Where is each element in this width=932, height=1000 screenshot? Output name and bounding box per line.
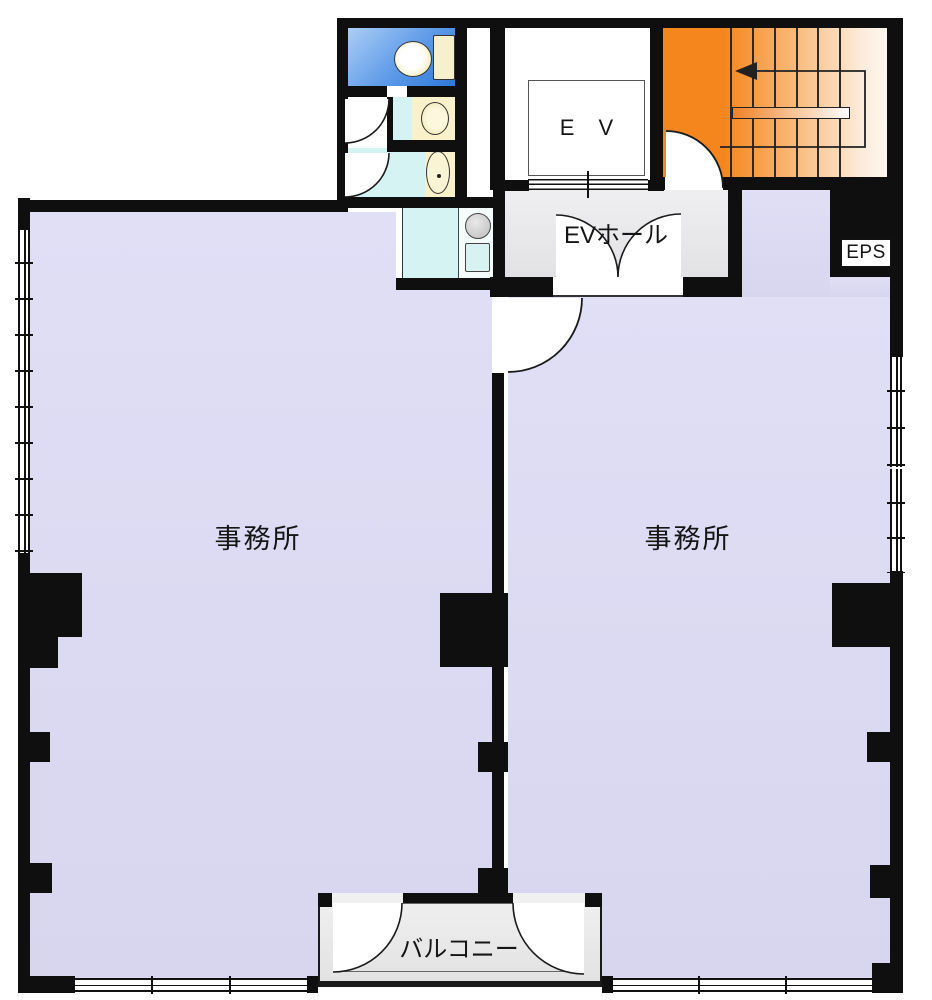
pillar — [18, 637, 58, 668]
office-right-floor-under-eps — [830, 277, 892, 297]
wall — [403, 893, 513, 903]
wall — [492, 372, 504, 593]
kitchenette-floor — [403, 207, 458, 278]
window — [18, 228, 30, 553]
wash-basin-drain — [437, 174, 441, 178]
pillar — [478, 742, 508, 772]
pillar — [18, 573, 82, 637]
office-right-floor-upper — [742, 188, 830, 297]
room-label-balcony: バルコニー — [359, 929, 559, 964]
wall — [602, 976, 613, 993]
toilet-tank-icon — [433, 35, 455, 80]
window — [75, 978, 307, 992]
wall — [492, 772, 504, 868]
wall — [20, 200, 348, 212]
stair-tread — [817, 28, 819, 177]
pillar — [867, 732, 897, 762]
stair-tread — [839, 28, 841, 177]
pillar — [440, 593, 508, 667]
floor-plan: E V — [0, 0, 932, 1000]
wall — [387, 140, 457, 152]
window — [890, 355, 902, 467]
door-opening-ev-hall — [553, 277, 683, 297]
kitchen-counter-square — [465, 243, 490, 272]
pillar — [478, 868, 508, 895]
wall — [887, 18, 903, 190]
wall — [492, 667, 504, 742]
room-label-ev-hall: EVホール — [516, 215, 716, 250]
pillar — [832, 583, 897, 647]
wall — [728, 185, 742, 277]
wall — [505, 180, 529, 191]
toilet-icon — [421, 102, 449, 135]
pillar — [20, 732, 50, 762]
eps-label: EPS — [846, 242, 886, 264]
eps-label-box: EPS — [840, 238, 892, 268]
wall — [307, 976, 318, 993]
wall — [455, 28, 467, 198]
wall — [348, 86, 387, 97]
wall — [337, 18, 903, 28]
wc-room-2-door-area — [342, 97, 387, 152]
wall — [337, 18, 348, 208]
door-opening-office-right — [492, 297, 508, 373]
pillar — [20, 863, 52, 893]
wall — [396, 278, 506, 290]
room-label-office-right: 事務所 — [588, 517, 788, 556]
wall — [585, 893, 602, 907]
wall-gap — [387, 86, 407, 97]
wall — [18, 976, 75, 993]
wall — [407, 86, 457, 97]
door-opening-stairs — [665, 177, 723, 190]
wc-room-2-floor — [393, 97, 412, 140]
wash-basin-icon — [426, 151, 450, 194]
stair-landing-bar — [732, 107, 850, 119]
wall — [337, 197, 505, 208]
window — [890, 469, 902, 573]
stair-tread — [796, 28, 798, 177]
kitchenette-passage — [396, 207, 403, 278]
wall — [650, 18, 663, 185]
wall — [648, 180, 664, 191]
stair-tread — [774, 28, 776, 177]
washroom-floor — [342, 148, 425, 200]
pillar — [870, 865, 900, 898]
toilet-icon — [394, 41, 432, 77]
stair-tread — [752, 28, 754, 177]
elevator-car: E V — [528, 80, 645, 176]
wall — [890, 277, 903, 357]
wall — [387, 97, 393, 140]
kitchen-sink-icon — [465, 213, 491, 239]
stair-tread — [730, 28, 732, 177]
wall — [18, 198, 30, 230]
room-label-office-left: 事務所 — [158, 517, 358, 556]
elevator-label: E V — [551, 115, 622, 141]
window — [613, 978, 872, 992]
wall — [490, 18, 505, 190]
wall — [318, 893, 332, 907]
staircase — [663, 28, 887, 177]
elevator-door-center-tick — [587, 171, 589, 198]
office-left-floor — [30, 212, 492, 978]
